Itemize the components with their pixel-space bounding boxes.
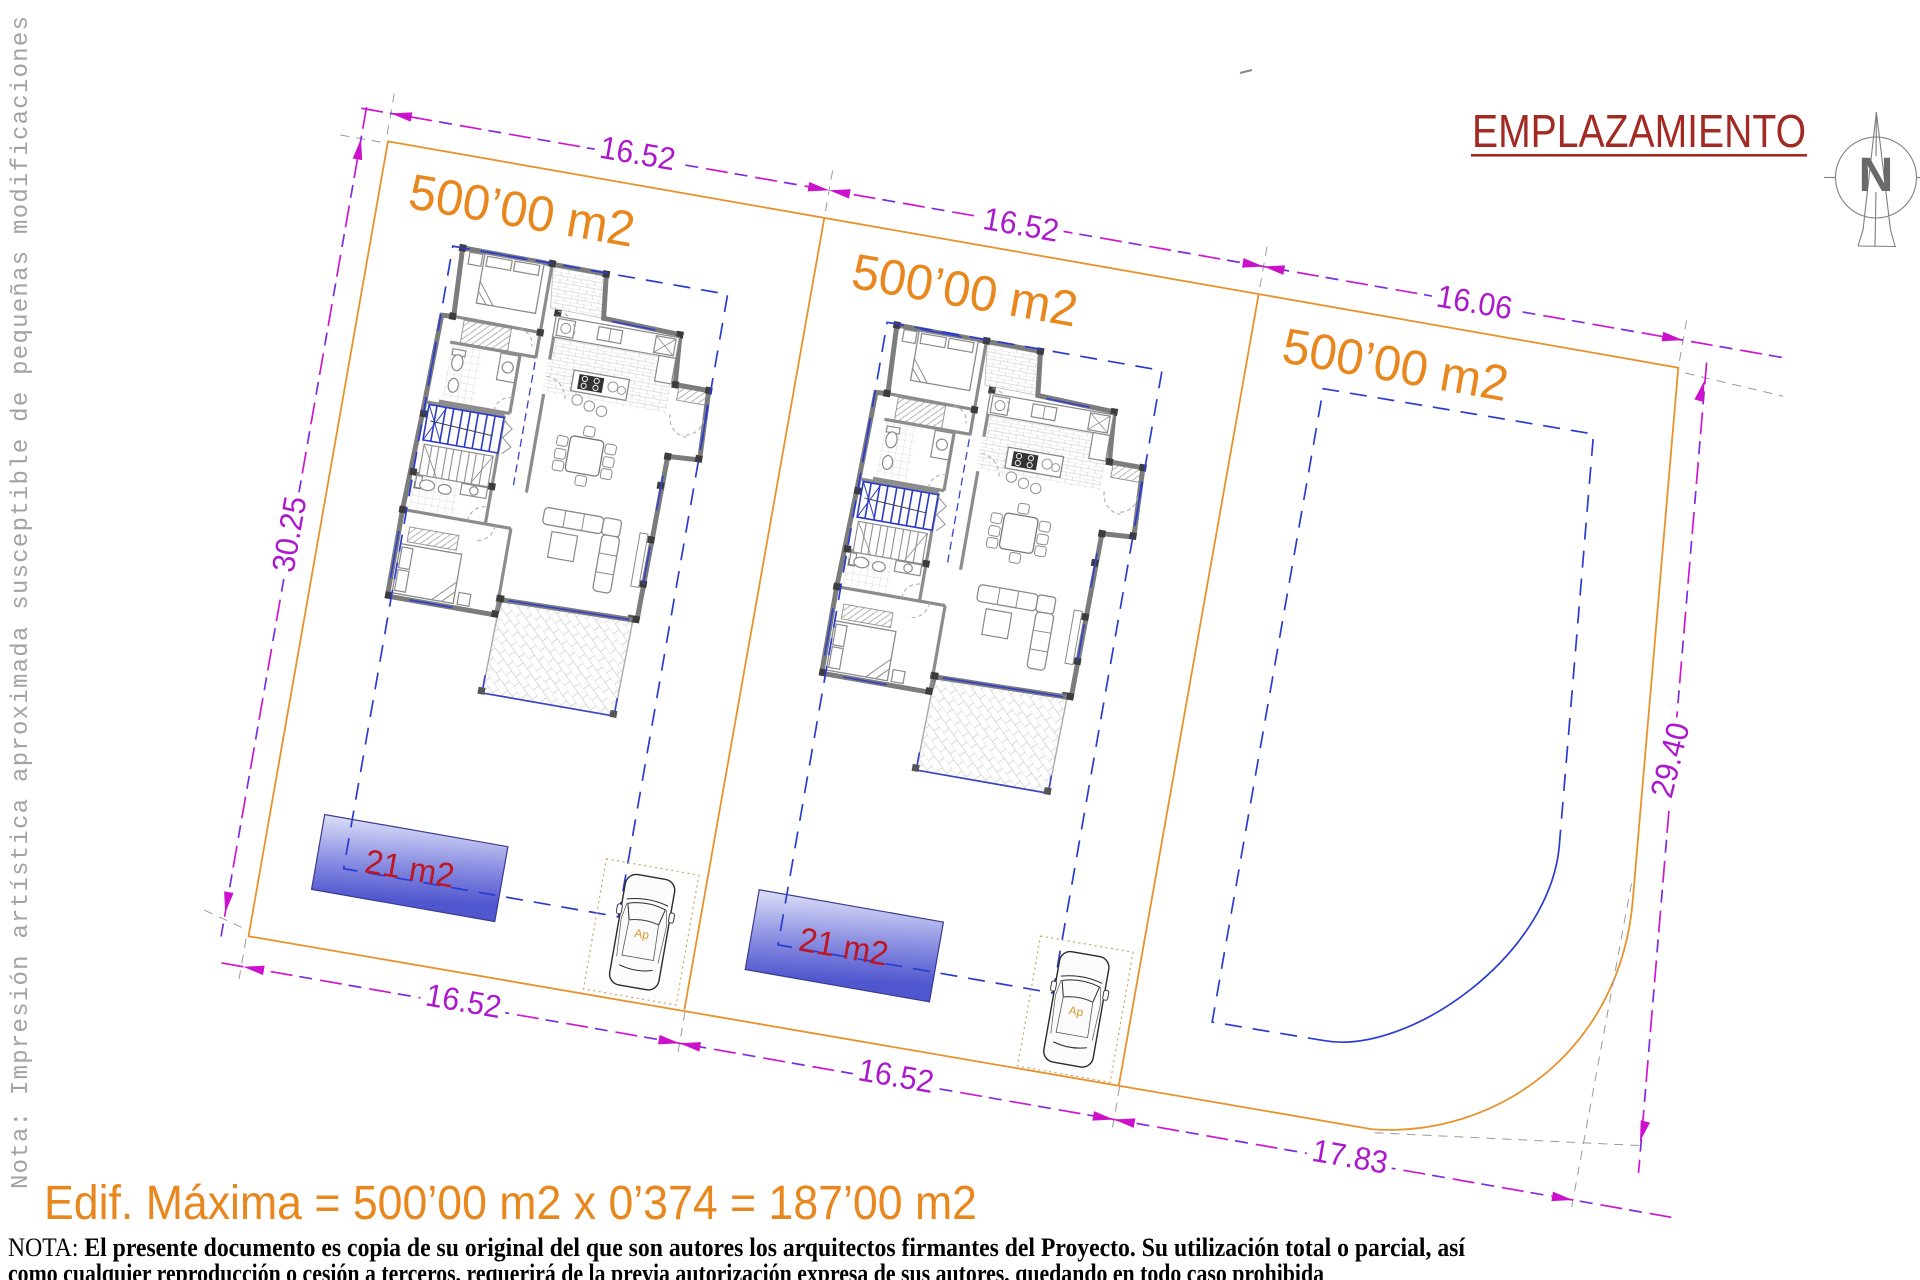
svg-text:500’00 m2: 500’00 m2 — [405, 163, 639, 258]
svg-text:16.52: 16.52 — [423, 977, 504, 1026]
svg-text:16.52: 16.52 — [597, 129, 678, 178]
svg-text:30.25: 30.25 — [265, 494, 314, 575]
svg-text:16.52: 16.52 — [856, 1051, 937, 1100]
svg-text:17.83: 17.83 — [1310, 1132, 1391, 1181]
svg-text:como cualquier reproducción o: como cualquier reproducción o cesión a t… — [8, 1258, 1324, 1280]
svg-text:16.52: 16.52 — [981, 200, 1062, 249]
svg-text:16.06: 16.06 — [1434, 278, 1515, 327]
svg-text:Edif. Máxima = 500’00 m2 x 0’3: Edif. Máxima = 500’00 m2 x 0’374 = 187’0… — [44, 1177, 977, 1230]
svg-text:EMPLAZAMIENTO: EMPLAZAMIENTO — [1472, 105, 1806, 157]
svg-text:29.40: 29.40 — [1643, 719, 1696, 801]
svg-text:N: N — [1859, 149, 1894, 202]
svg-text:Nota: Impresión artística apro: Nota: Impresión artística aproximada sus… — [8, 16, 35, 1189]
